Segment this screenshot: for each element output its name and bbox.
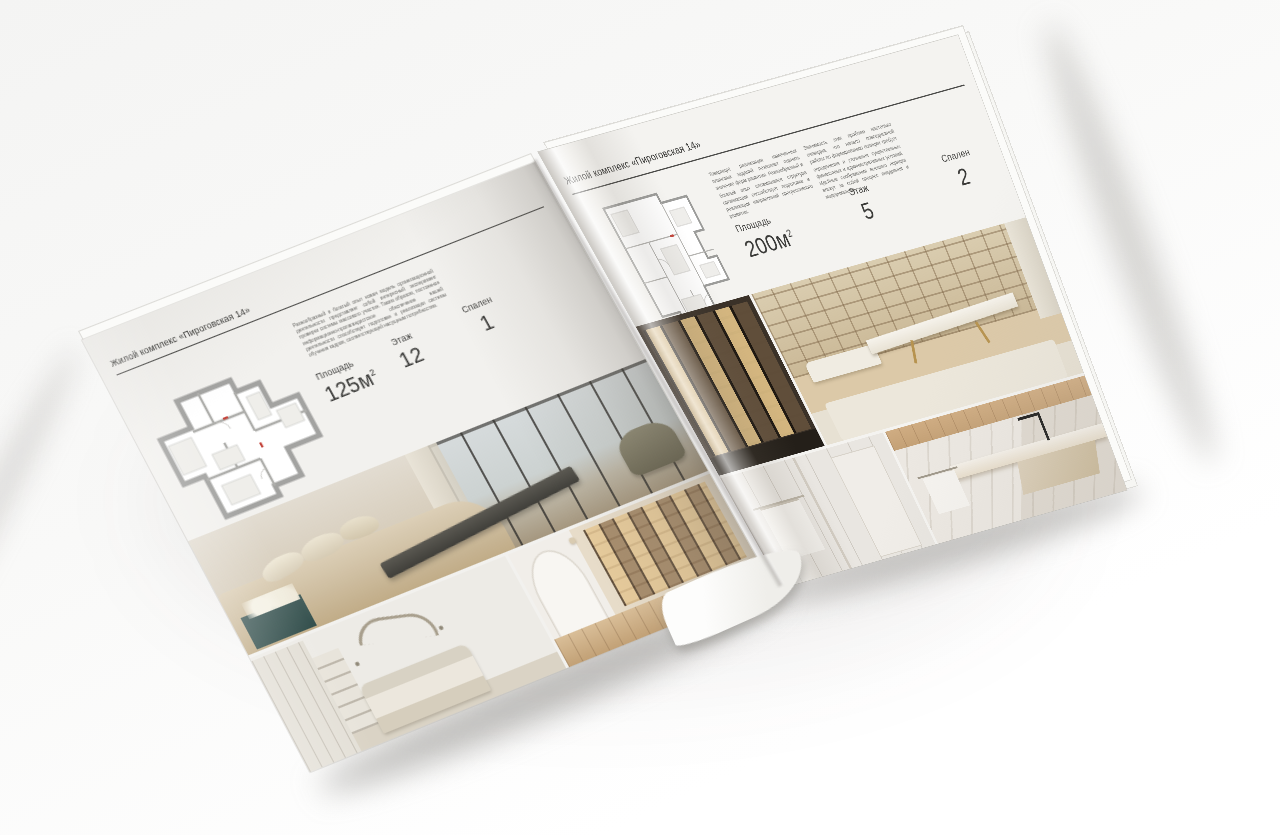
- sconce-shape: [438, 625, 444, 630]
- mockup-scene: Жилой комплекс «Пироговская 14» Разнообр…: [0, 0, 1280, 835]
- pendant-light-shape: [568, 536, 577, 544]
- black-faucet-shape: [1037, 412, 1050, 441]
- arc-artwork-shape: [352, 610, 438, 645]
- sconce-shape: [355, 661, 361, 666]
- stat-bedrooms: Спален 1: [448, 289, 520, 344]
- stat-bedrooms: Спален 2: [928, 143, 993, 197]
- left-edge-shadow: [0, 340, 92, 745]
